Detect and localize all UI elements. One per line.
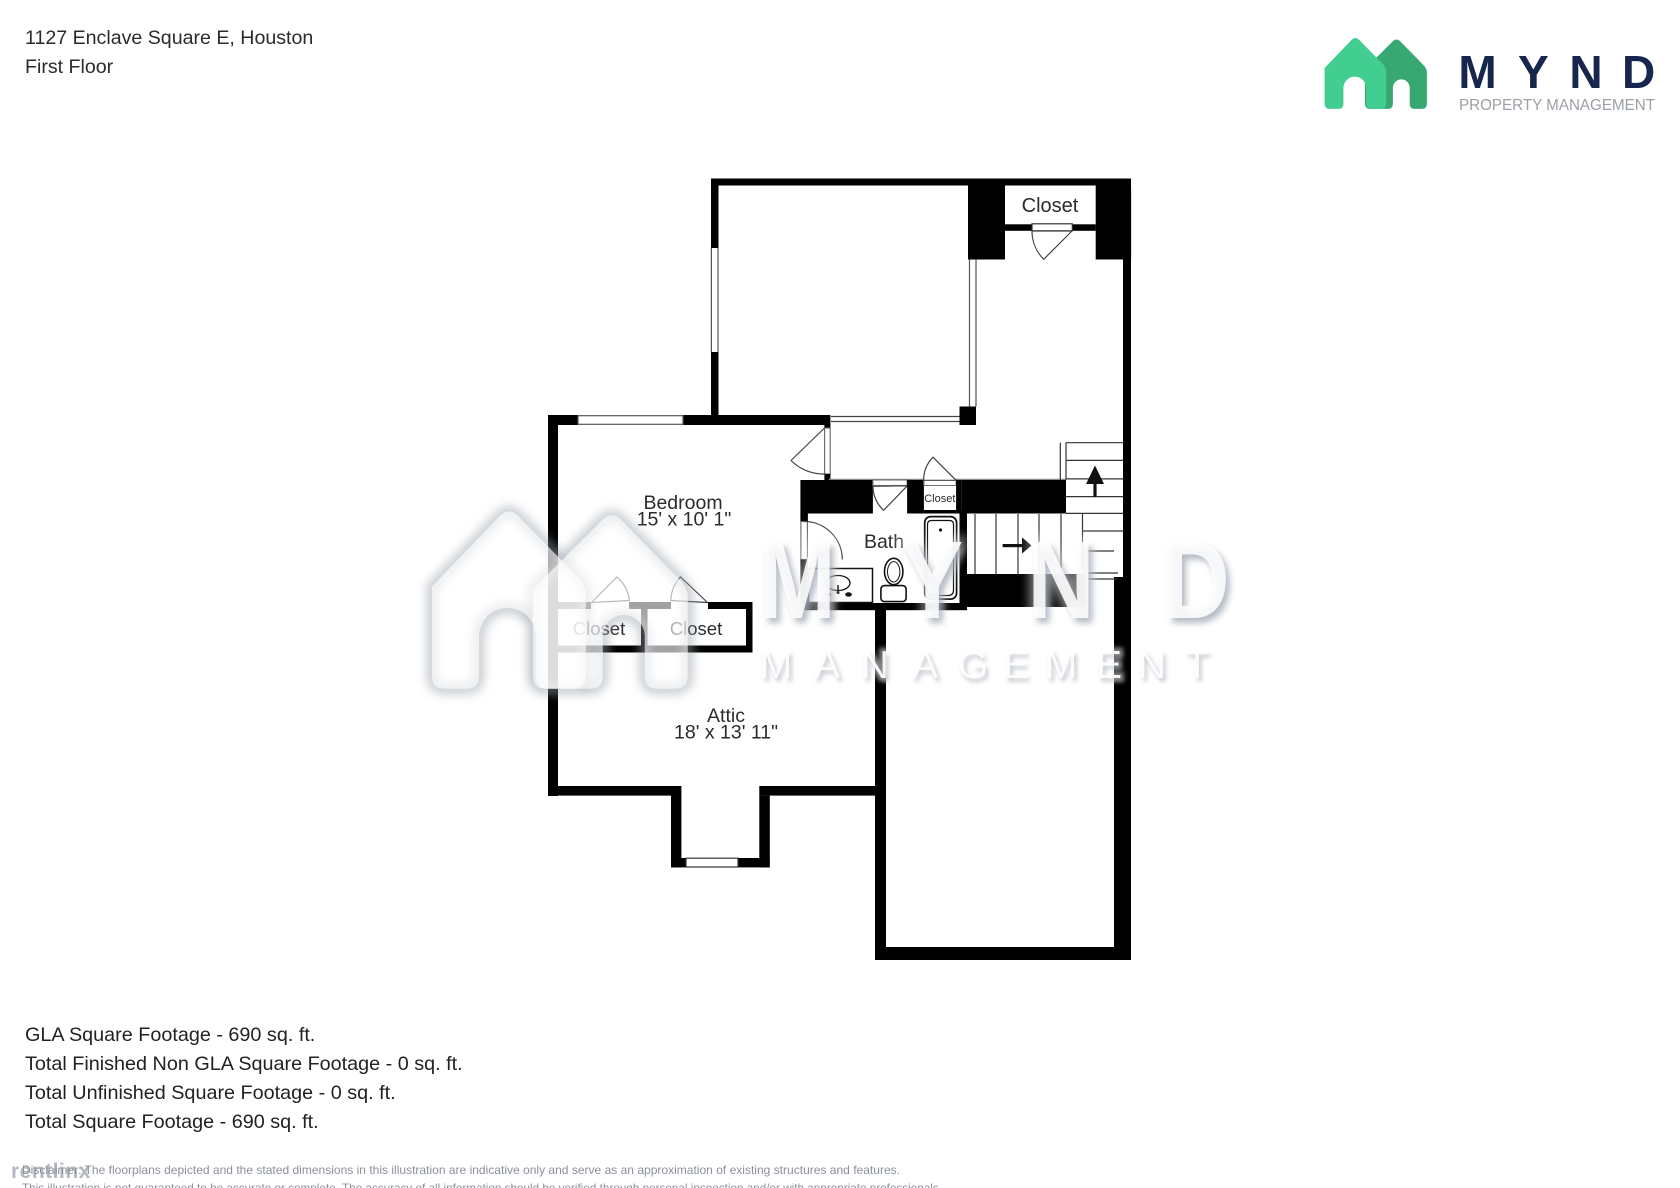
svg-text:A: A	[814, 644, 840, 687]
svg-text:Y: Y	[1518, 46, 1549, 98]
svg-text:Bath: Bath	[864, 531, 904, 553]
svg-text:M: M	[760, 644, 793, 687]
svg-text:D: D	[1622, 46, 1655, 98]
svg-text:Closet: Closet	[924, 493, 955, 505]
svg-text:D: D	[1162, 519, 1230, 642]
svg-text:This illustration is not guara: This illustration is not guaranteed to b…	[22, 1182, 942, 1188]
svg-text:E: E	[1003, 644, 1029, 687]
svg-text:15' x 10' 1": 15' x 10' 1"	[637, 509, 732, 531]
svg-text:M: M	[758, 519, 836, 642]
svg-text:E: E	[1096, 644, 1122, 687]
svg-text:Disclaimer: The floorplans dep: Disclaimer: The floorplans depicted and …	[22, 1164, 900, 1177]
svg-text:N: N	[1569, 46, 1602, 98]
svg-text:1127 Enclave Square E, Houston: 1127 Enclave Square E, Houston	[25, 27, 313, 49]
svg-text:M: M	[1045, 644, 1078, 687]
svg-text:N: N	[1027, 519, 1095, 642]
svg-text:Y: Y	[901, 519, 963, 642]
svg-text:18' x 13' 11": 18' x 13' 11"	[674, 722, 778, 744]
svg-text:M: M	[1458, 46, 1496, 98]
svg-text:Total Unfinished Square Footag: Total Unfinished Square Footage - 0 sq. …	[25, 1082, 396, 1104]
svg-text:First Floor: First Floor	[25, 56, 114, 78]
svg-text:N: N	[1138, 644, 1166, 687]
svg-text:T: T	[1185, 644, 1209, 687]
svg-text:Total Square Footage - 690 sq.: Total Square Footage - 690 sq. ft.	[25, 1111, 319, 1133]
svg-text:Total Finished Non GLA Square: Total Finished Non GLA Square Footage - …	[25, 1053, 463, 1075]
svg-text:Closet: Closet	[1022, 195, 1079, 217]
svg-text:GLA Square Footage - 690 sq. f: GLA Square Footage - 690 sq. ft.	[25, 1024, 315, 1046]
svg-text:G: G	[958, 644, 988, 687]
svg-text:A: A	[912, 644, 938, 687]
svg-text:PROPERTY MANAGEMENT: PROPERTY MANAGEMENT	[1459, 97, 1655, 114]
svg-text:N: N	[861, 644, 889, 687]
